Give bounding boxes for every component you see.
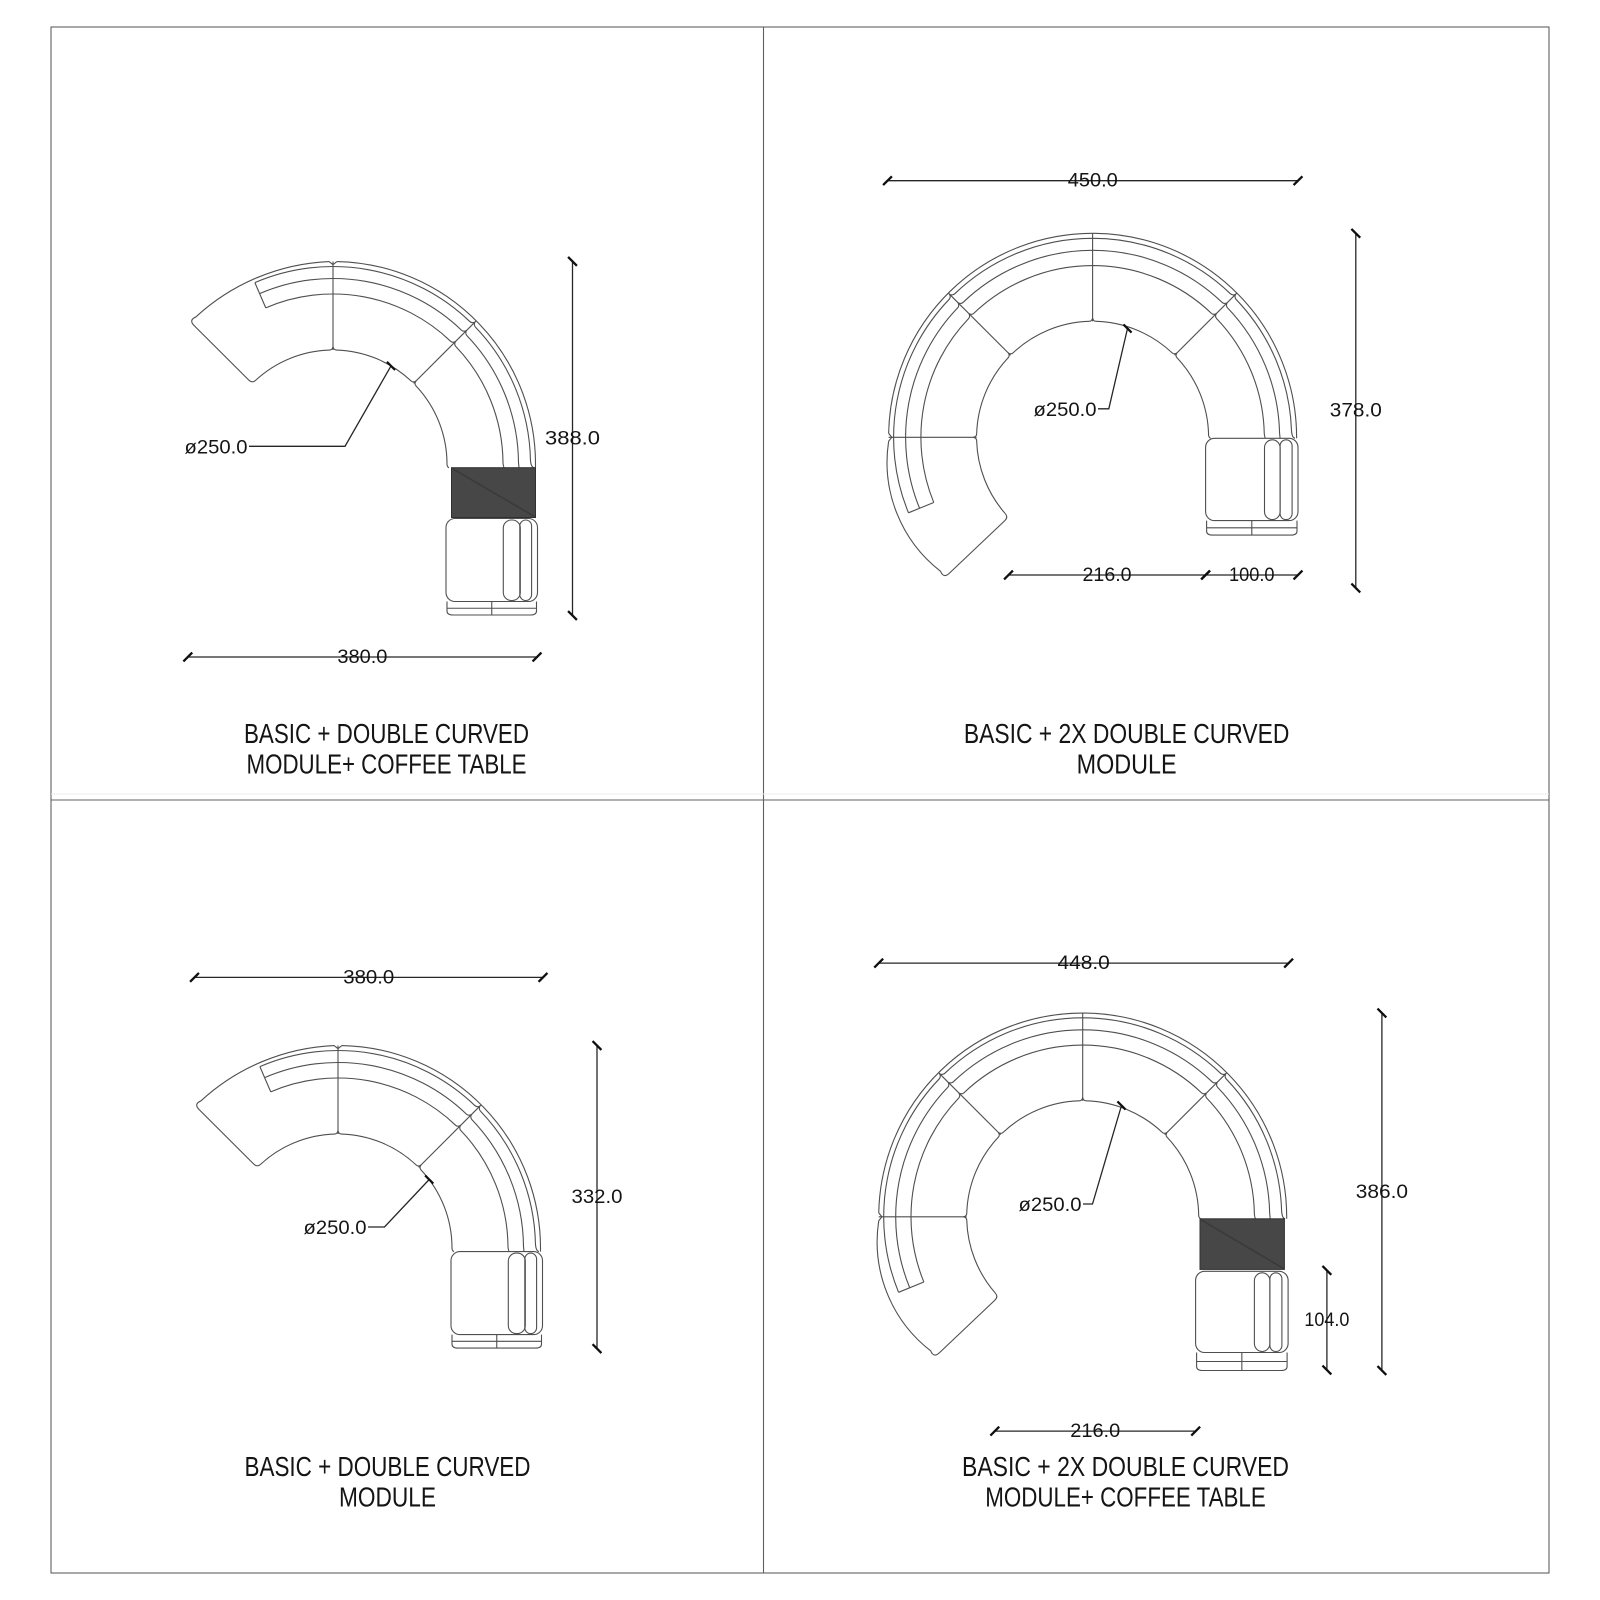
svg-text:ø250.0: ø250.0 <box>185 436 248 458</box>
svg-text:450.0: 450.0 <box>1068 170 1118 192</box>
svg-text:104.0: 104.0 <box>1304 1309 1349 1331</box>
svg-text:BASIC + 2X DOUBLE CURVED: BASIC + 2X DOUBLE CURVED <box>964 718 1290 749</box>
svg-text:216.0: 216.0 <box>1070 1420 1120 1442</box>
svg-text:MODULE+ COFFEE TABLE: MODULE+ COFFEE TABLE <box>247 748 527 779</box>
svg-text:386.0: 386.0 <box>1356 1181 1408 1203</box>
svg-text:332.0: 332.0 <box>572 1186 623 1208</box>
svg-text:BASIC + DOUBLE CURVED: BASIC + DOUBLE CURVED <box>245 1451 531 1482</box>
svg-text:378.0: 378.0 <box>1330 400 1382 422</box>
svg-text:216.0: 216.0 <box>1083 564 1132 586</box>
svg-text:ø250.0: ø250.0 <box>304 1217 367 1239</box>
svg-text:MODULE+ COFFEE TABLE: MODULE+ COFFEE TABLE <box>985 1481 1266 1512</box>
svg-text:BASIC + 2X DOUBLE CURVED: BASIC + 2X DOUBLE CURVED <box>962 1451 1289 1482</box>
svg-text:ø250.0: ø250.0 <box>1019 1194 1082 1216</box>
svg-text:MODULE: MODULE <box>339 1481 436 1512</box>
svg-text:380.0: 380.0 <box>337 646 387 668</box>
svg-text:388.0: 388.0 <box>545 427 600 449</box>
svg-text:380.0: 380.0 <box>343 966 394 988</box>
svg-text:100.0: 100.0 <box>1229 564 1275 586</box>
svg-text:MODULE: MODULE <box>1077 748 1177 779</box>
svg-text:448.0: 448.0 <box>1058 952 1110 974</box>
svg-text:ø250.0: ø250.0 <box>1034 399 1097 421</box>
svg-text:BASIC + DOUBLE CURVED: BASIC + DOUBLE CURVED <box>244 718 529 749</box>
